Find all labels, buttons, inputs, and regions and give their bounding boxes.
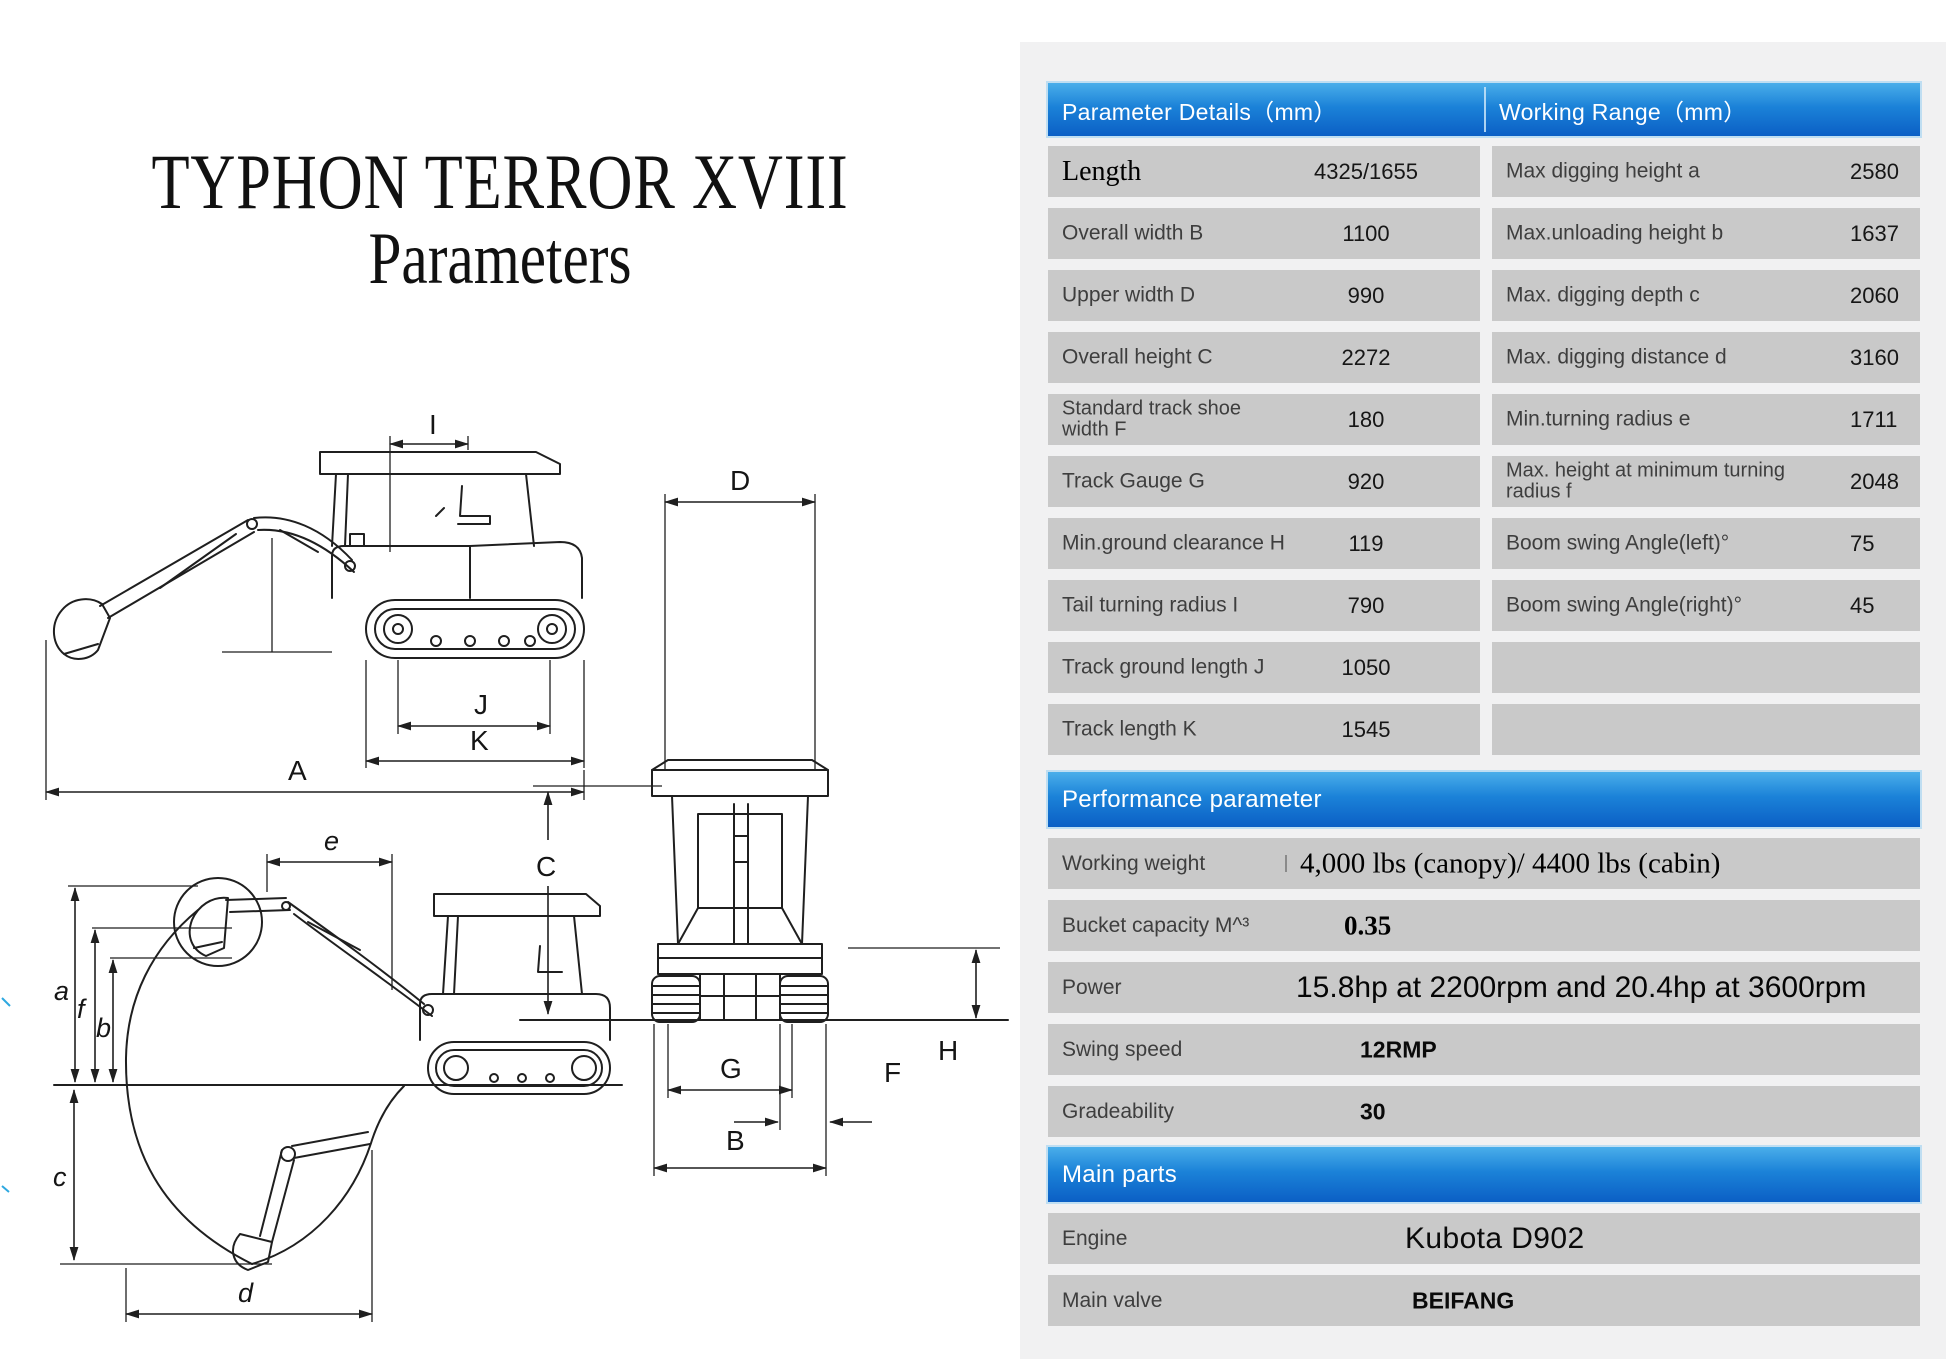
perf-label: Gradeability xyxy=(1062,1100,1174,1124)
param-value: 119 xyxy=(1276,531,1456,557)
table-row: Boom swing Angle(right)° 45 xyxy=(1492,580,1920,631)
edge-artifact xyxy=(2,998,10,1192)
perf-value: 0.35 xyxy=(1344,910,1391,941)
table-row: Length 4325/1655 xyxy=(1048,146,1480,197)
dim-label-G: G xyxy=(720,1053,742,1084)
spec-table-header: Parameter Details（mm） Working Range（mm） xyxy=(1048,83,1920,136)
perf-value: 12RMP xyxy=(1360,1036,1437,1063)
param-label: Length xyxy=(1062,156,1282,186)
dim-label-a: a xyxy=(54,976,69,1006)
table-row: Track length K 1545 xyxy=(1048,704,1480,755)
dim-label-C: C xyxy=(536,851,556,882)
dim-label-H: H xyxy=(938,1035,958,1066)
main-parts-section-header: Main parts xyxy=(1048,1147,1920,1202)
range-label: Max digging height a xyxy=(1506,160,1841,183)
range-value: 2048 xyxy=(1850,469,1914,495)
table-row: Min.turning radius e 1711 xyxy=(1492,394,1920,445)
working-range-header: Working Range（mm） xyxy=(1499,83,1747,136)
part-value: BEIFANG xyxy=(1412,1287,1514,1314)
table-row: Max. digging depth c 2060 xyxy=(1492,270,1920,321)
side-view-drawing: I J K A xyxy=(46,409,584,800)
param-label: Standard track shoe width F xyxy=(1062,398,1280,441)
table-row: Tail turning radius I 790 xyxy=(1048,580,1480,631)
dim-label-b: b xyxy=(96,1013,111,1043)
perf-label: Swing speed xyxy=(1062,1038,1182,1062)
dim-label-J: J xyxy=(474,689,488,720)
table-row: Min.ground clearance H 119 xyxy=(1048,518,1480,569)
technical-drawings: I J K A xyxy=(0,0,1028,1359)
range-value: 3160 xyxy=(1850,345,1914,371)
range-value: 75 xyxy=(1850,531,1914,557)
dim-label-f: f xyxy=(77,994,87,1024)
table-row: Max. digging distance d 3160 xyxy=(1492,332,1920,383)
param-value: 180 xyxy=(1276,407,1456,433)
table-row: Overall height C 2272 xyxy=(1048,332,1480,383)
table-row: Boom swing Angle(left)° 75 xyxy=(1492,518,1920,569)
range-label: Max. digging depth c xyxy=(1506,284,1841,307)
table-row: Main valve BEIFANG xyxy=(1048,1275,1920,1326)
range-value: 45 xyxy=(1850,593,1914,619)
param-value: 1100 xyxy=(1276,221,1456,247)
dim-label-c: c xyxy=(53,1162,67,1192)
param-value: 920 xyxy=(1276,469,1456,495)
param-label: Tail turning radius I xyxy=(1062,594,1302,617)
perf-value: 30 xyxy=(1360,1098,1386,1125)
front-view-drawing: D C xyxy=(520,465,1008,1176)
table-row: Max.unloading height b 1637 xyxy=(1492,208,1920,259)
dim-label-e: e xyxy=(324,826,339,856)
range-label: Boom swing Angle(right)° xyxy=(1506,594,1841,617)
table-row: Track Gauge G 920 xyxy=(1048,456,1480,507)
part-label: Main valve xyxy=(1062,1289,1162,1313)
table-row-empty xyxy=(1492,704,1920,755)
param-value: 1050 xyxy=(1276,655,1456,681)
dim-label-A: A xyxy=(288,755,307,786)
table-row: Gradeability 30 xyxy=(1048,1086,1920,1137)
working-range-drawing: e a f b c xyxy=(2,826,622,1322)
dim-label-K: K xyxy=(470,725,489,756)
separator-tick xyxy=(1285,855,1287,872)
table-row: Swing speed 12RMP xyxy=(1048,1024,1920,1075)
param-label: Track length K xyxy=(1062,718,1302,741)
range-label: Max.unloading height b xyxy=(1506,222,1841,245)
perf-label: Power xyxy=(1062,976,1122,1000)
perf-value: 15.8hp at 2200rpm and 20.4hp at 3600rpm xyxy=(1296,971,1866,1005)
performance-header-label: Performance parameter xyxy=(1062,786,1322,814)
main-parts-header-label: Main parts xyxy=(1062,1161,1177,1189)
param-label: Min.ground clearance H xyxy=(1062,532,1302,555)
range-value: 1711 xyxy=(1850,407,1914,433)
dim-label-D: D xyxy=(730,465,750,496)
part-value: Kubota D902 xyxy=(1405,1222,1585,1256)
dim-label-B: B xyxy=(726,1125,745,1156)
perf-label: Bucket capacity M^³ xyxy=(1062,914,1249,938)
table-row: Working weight 4,000 lbs (canopy)/ 4400 … xyxy=(1048,838,1920,889)
range-label: Max. digging distance d xyxy=(1506,346,1841,369)
performance-section-header: Performance parameter xyxy=(1048,772,1920,827)
part-label: Engine xyxy=(1062,1227,1127,1251)
param-value: 1545 xyxy=(1276,717,1456,743)
table-row: Track ground length J 1050 xyxy=(1048,642,1480,693)
perf-value: 4,000 lbs (canopy)/ 4400 lbs (cabin) xyxy=(1300,847,1720,880)
spec-sheet-page: TYPHON TERROR XVIII Parameters xyxy=(0,0,1946,1359)
range-value: 2580 xyxy=(1850,159,1914,185)
table-row-empty xyxy=(1492,642,1920,693)
range-value: 1637 xyxy=(1850,221,1914,247)
table-row: Power 15.8hp at 2200rpm and 20.4hp at 36… xyxy=(1048,962,1920,1013)
param-value: 4325/1655 xyxy=(1276,159,1456,185)
param-label: Upper width D xyxy=(1062,284,1302,307)
table-row: Overall width B 1100 xyxy=(1048,208,1480,259)
range-label: Min.turning radius e xyxy=(1506,408,1841,431)
table-row: Upper width D 990 xyxy=(1048,270,1480,321)
param-label: Track Gauge G xyxy=(1062,470,1302,493)
table-row: Max. height at minimum turning radius f … xyxy=(1492,456,1920,507)
table-row: Standard track shoe width F 180 xyxy=(1048,394,1480,445)
range-value: 2060 xyxy=(1850,283,1914,309)
perf-label: Working weight xyxy=(1062,852,1205,876)
header-divider xyxy=(1484,87,1486,132)
param-label: Track ground length J xyxy=(1062,656,1302,679)
param-value: 990 xyxy=(1276,283,1456,309)
param-label: Overall height C xyxy=(1062,346,1302,369)
table-row: Bucket capacity M^³ 0.35 xyxy=(1048,900,1920,951)
dim-label-F: F xyxy=(884,1057,901,1088)
dim-label-d: d xyxy=(238,1278,254,1308)
param-value: 2272 xyxy=(1276,345,1456,371)
range-label: Boom swing Angle(left)° xyxy=(1506,532,1841,555)
parameter-details-header: Parameter Details（mm） xyxy=(1062,83,1337,136)
range-label: Max. height at minimum turning radius f xyxy=(1506,460,1841,503)
table-row: Max digging height a 2580 xyxy=(1492,146,1920,197)
dim-label-I: I xyxy=(429,409,437,440)
param-value: 790 xyxy=(1276,593,1456,619)
param-label: Overall width B xyxy=(1062,222,1302,245)
table-row: Engine Kubota D902 xyxy=(1048,1213,1920,1264)
